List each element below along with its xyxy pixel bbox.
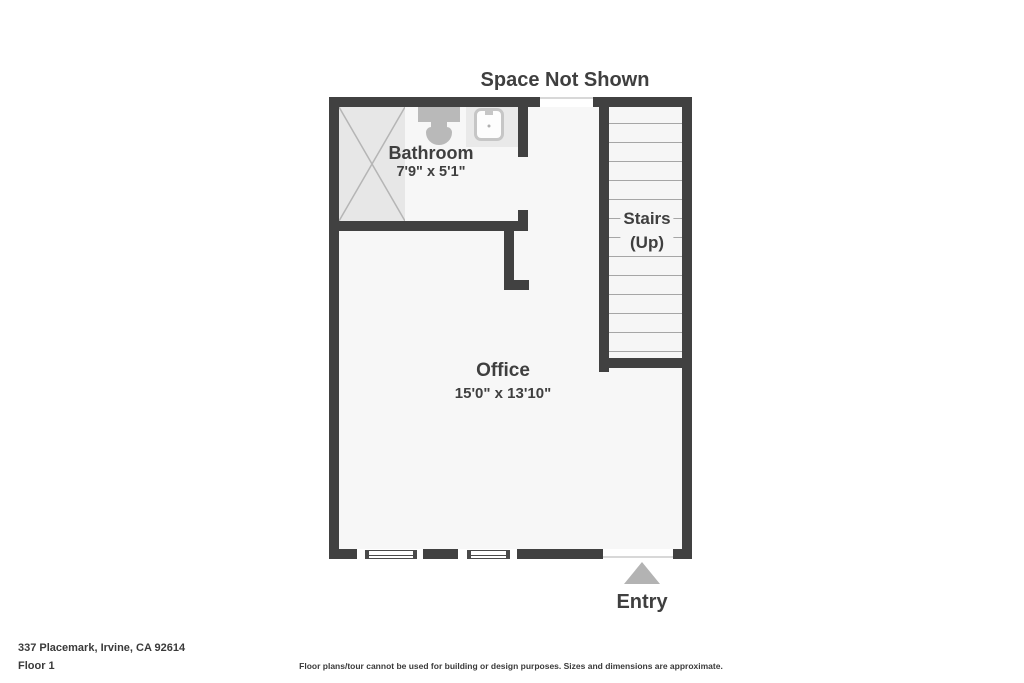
sink-icon (474, 108, 504, 141)
stairs-wall-bottom (609, 358, 682, 368)
window-icon (365, 550, 417, 559)
office-label: Office (476, 360, 530, 382)
top-opening-threshold (540, 97, 593, 99)
bathroom-wall-right-upper (518, 107, 528, 157)
stair-tread-line (609, 294, 683, 295)
stair-tread-line (609, 313, 683, 314)
stairs-label: Stairs (Up) (620, 207, 673, 255)
bathroom-label: Bathroom (389, 143, 474, 164)
window-pane-line (471, 555, 506, 556)
stair-tread-line (609, 332, 683, 333)
shower-icon (339, 107, 405, 221)
stair-tread-line (609, 123, 683, 124)
window-pane-line (369, 555, 413, 556)
stair-tread-line (609, 180, 683, 181)
footer-floor-label: Floor 1 (18, 660, 55, 672)
window-icon (467, 550, 510, 559)
office-dimensions: 15'0" x 13'10" (455, 385, 551, 402)
bathroom-dimensions: 7'9" x 5'1" (396, 164, 465, 180)
sink-faucet (485, 110, 493, 115)
sink-drain (488, 124, 491, 127)
wall-bottom-segment-2 (423, 549, 458, 559)
footer-address: 337 Placemark, Irvine, CA 92614 (18, 642, 185, 654)
entry-opening-threshold (603, 556, 673, 558)
wall-right (682, 97, 692, 559)
wall-bottom-segment-3 (517, 549, 603, 559)
space-not-shown-label: Space Not Shown (481, 69, 650, 92)
toilet-icon (418, 107, 460, 122)
wall-top-right-segment (593, 97, 692, 107)
stair-tread-line (609, 275, 683, 276)
stairs-label-line1: Stairs (623, 207, 670, 231)
office-partition-foot (504, 280, 529, 290)
wall-left (329, 97, 339, 559)
stair-tread-line (609, 351, 683, 352)
stair-tread-line (609, 256, 683, 257)
wall-top-left-segment (329, 97, 540, 107)
stairs-wall-left (599, 107, 609, 372)
footer-disclaimer: Floor plans/tour cannot be used for buil… (299, 661, 723, 671)
wall-bottom-segment-4 (673, 549, 692, 559)
entry-arrow-icon (624, 562, 660, 584)
wall-bottom-segment-1 (329, 549, 357, 559)
stair-tread-line (609, 142, 683, 143)
stair-tread-line (609, 161, 683, 162)
stair-tread-line (609, 199, 683, 200)
stairs-label-line2: (Up) (623, 231, 670, 255)
bathroom-wall-bottom (339, 221, 528, 231)
entry-label: Entry (616, 591, 667, 614)
floor-plan-page: Space Not Shown Bathroom 7'9" x 5'1" Sta… (0, 0, 1024, 683)
